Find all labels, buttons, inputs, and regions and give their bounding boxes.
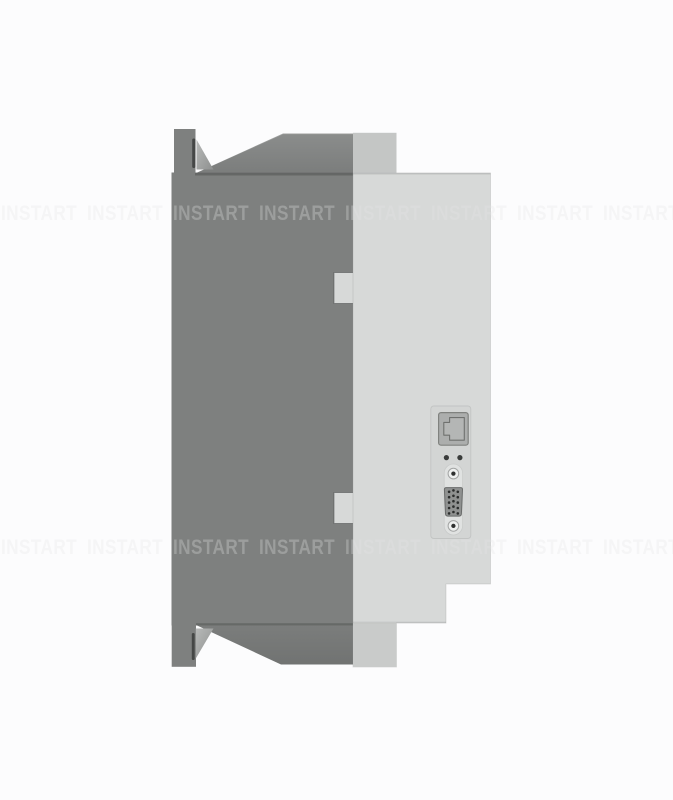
- d-sub-pin: [457, 512, 460, 515]
- chassis-body: [172, 173, 354, 626]
- d-sub-pin: [452, 500, 455, 503]
- indicator-dot-right-icon: [457, 455, 462, 460]
- keyhole-slot-bottom-icon: [192, 633, 195, 660]
- flange-gusset-top: [197, 140, 214, 170]
- d-sub-pin: [457, 496, 460, 499]
- rj45-port-icon: [439, 413, 469, 446]
- d-sub-pin: [448, 496, 451, 499]
- cover-clip-tab-upper-icon: [334, 273, 354, 304]
- d-sub-pin: [452, 495, 455, 498]
- top-ledge-shadow: [195, 173, 354, 176]
- d-sub-pin: [448, 501, 451, 504]
- d-sub-connector-icon: [444, 464, 462, 535]
- d-sub-pin: [448, 512, 451, 515]
- product-photo-stage: INSTARTINSTARTINSTARTINSTARTINSTARTINSTA…: [0, 0, 673, 800]
- d-sub-pin: [452, 489, 455, 492]
- keyhole-slot-top-icon: [192, 139, 195, 169]
- d-sub-pin: [457, 491, 460, 494]
- d-sub-pin: [452, 511, 455, 514]
- cover-clip-tab-lower-icon: [334, 493, 354, 524]
- inverter-side-view: [0, 0, 673, 800]
- d-sub-pin: [448, 507, 451, 510]
- d-sub-screw-bottom-center: [451, 524, 455, 528]
- d-sub-pin: [452, 505, 455, 508]
- chassis-roof-slope: [195, 134, 354, 174]
- d-sub-pin: [457, 507, 460, 510]
- d-sub-pin: [448, 491, 451, 494]
- indicator-dot-left-icon: [444, 455, 449, 460]
- bottom-ledge-shadow: [196, 623, 354, 625]
- flange-gusset-bottom: [196, 629, 214, 659]
- d-sub-pin: [457, 501, 460, 504]
- cover-step-edge-shade: [353, 622, 446, 624]
- cover-top-edge-shade: [353, 173, 491, 175]
- cover-top-overlap: [353, 133, 397, 173]
- chassis-bottom-slope: [196, 625, 354, 665]
- cover-bottom-overlap: [353, 623, 397, 667]
- d-sub-screw-top-center: [451, 471, 455, 475]
